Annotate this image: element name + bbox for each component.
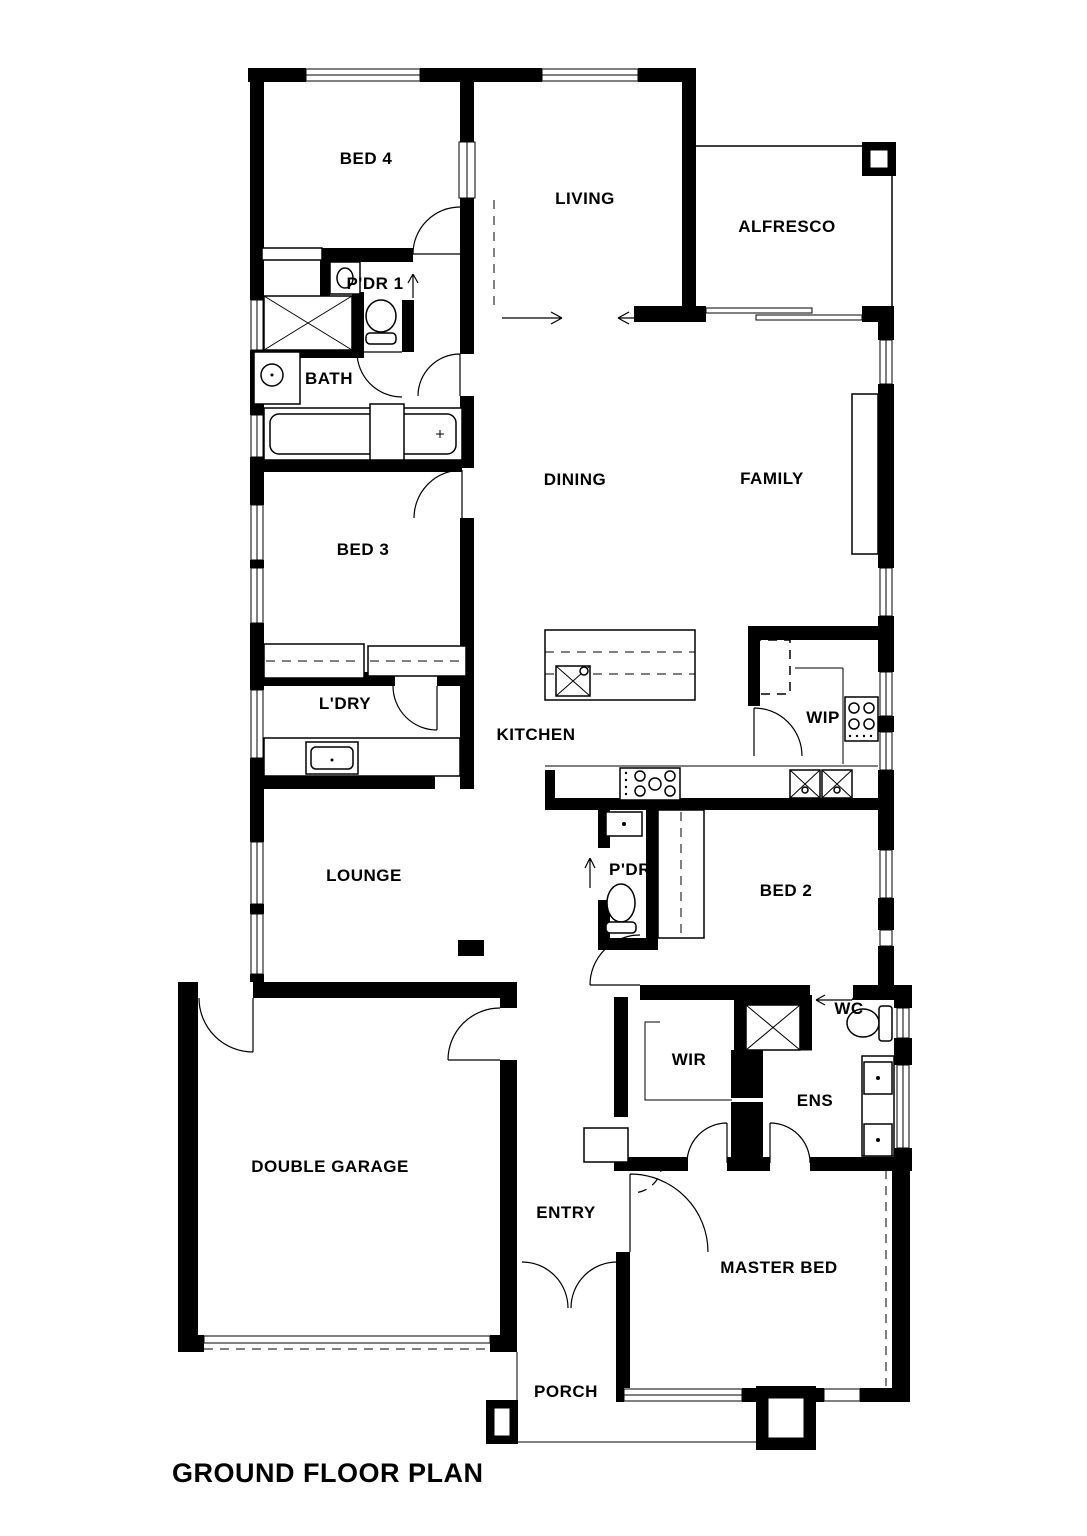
wall [878, 716, 894, 732]
door-swing-icon [199, 998, 253, 1052]
room-label-family: FAMILY [740, 469, 804, 488]
room-label-wc: WC [834, 999, 863, 1018]
door-swing-icon [414, 470, 462, 518]
pillar-core [768, 1398, 804, 1438]
wall [614, 997, 628, 1117]
knob [856, 735, 858, 737]
wall [638, 68, 682, 82]
wall [727, 1157, 770, 1171]
room-label-bed3: BED 3 [337, 540, 390, 559]
wall [352, 292, 364, 352]
room-label-bed4: BED 4 [340, 149, 393, 168]
room-label-porch: PORCH [534, 1382, 598, 1401]
knob [625, 786, 627, 788]
door-swing-icon [687, 1123, 727, 1163]
wall [402, 300, 414, 352]
trough-drain [331, 759, 334, 762]
page-title: GROUND FLOOR PLAN [172, 1458, 484, 1488]
wall [862, 306, 894, 322]
room-label-garage: DOUBLE GARAGE [251, 1157, 409, 1176]
toilet-base [366, 333, 396, 344]
basin-drain [876, 1138, 880, 1142]
wall [731, 1050, 763, 1098]
door-swing-icon [448, 1008, 500, 1060]
room-label-ldry: L'DRY [319, 694, 371, 713]
room-label-master: MASTER BED [720, 1258, 837, 1277]
wall [250, 974, 264, 982]
sliding-door-track [756, 315, 862, 320]
room-label-wir: WIR [672, 1050, 707, 1069]
room-label-bed2: BED 2 [760, 881, 813, 900]
knob [849, 735, 851, 737]
sink-tap [580, 667, 588, 675]
wall [458, 940, 484, 956]
wall [634, 306, 706, 322]
room-label-dining: DINING [544, 470, 607, 489]
wall [460, 775, 474, 789]
window-icon [824, 1389, 860, 1401]
wall [816, 1388, 824, 1402]
knob [863, 735, 865, 737]
knob [870, 735, 872, 737]
door-swing-icon [413, 207, 460, 254]
laundry-bench [264, 738, 460, 776]
wall [616, 1252, 630, 1388]
pantry-cooktop-icon [845, 697, 878, 741]
wall [748, 626, 878, 640]
wall [460, 254, 474, 354]
linen-cupboard [370, 404, 404, 460]
pillar-core [870, 150, 888, 168]
wall [682, 68, 696, 312]
bathtub-inner [270, 414, 456, 454]
garage-door-icon [204, 1336, 490, 1343]
wall [810, 1157, 912, 1171]
room-label-pdr1: P'DR 1 [346, 274, 403, 293]
trough-bowl [311, 747, 353, 769]
wall [460, 686, 474, 775]
pdr1-direction-arrow [408, 274, 418, 298]
wall [250, 904, 264, 914]
knob [625, 772, 627, 774]
pillar-core [494, 1408, 510, 1436]
door-swing-icon [357, 352, 402, 397]
basin-drain [271, 374, 274, 377]
room-label-lounge: LOUNGE [326, 866, 402, 885]
room-label-ens: ENS [797, 1091, 833, 1110]
room-label-living: LIVING [555, 189, 615, 208]
wall [322, 248, 413, 262]
wall [894, 1038, 912, 1065]
wall [250, 460, 462, 472]
wall [878, 384, 894, 568]
wall [460, 518, 474, 640]
door-swing-icon [630, 1174, 708, 1252]
room-label-wip: WIP [806, 708, 840, 727]
garage-door [204, 1336, 490, 1349]
toilet-base [606, 922, 636, 933]
wall [616, 1388, 624, 1402]
wall [878, 616, 894, 672]
room-label-alfresco: ALFRESCO [738, 217, 836, 236]
wall [250, 758, 264, 842]
toilet-base [879, 1006, 892, 1041]
pdr-direction-arrow [585, 858, 595, 888]
wall [892, 1162, 910, 1402]
wall [460, 198, 474, 254]
door-swing-icon [770, 1123, 810, 1163]
knob [625, 779, 627, 781]
room-label-entry: ENTRY [536, 1203, 596, 1222]
door-swing-icon [418, 354, 460, 396]
wall [734, 995, 812, 1005]
toilet-icon [607, 884, 635, 922]
wardrobe-icon [262, 248, 322, 260]
room-label-pdr: P'DR [609, 860, 651, 879]
wall [460, 82, 474, 142]
toilet-icon [366, 300, 396, 332]
door-swing-icon [754, 708, 802, 756]
wall [250, 775, 435, 789]
wall [545, 798, 878, 810]
wall [178, 1335, 204, 1352]
wall [878, 898, 894, 930]
wall [250, 560, 264, 568]
wall [878, 770, 894, 850]
wall [731, 1102, 763, 1162]
wall [742, 1388, 758, 1402]
basin-drain [622, 822, 626, 826]
basin-drain [876, 1076, 880, 1080]
wall [178, 982, 198, 1352]
wall [490, 1335, 517, 1352]
wall [860, 1388, 910, 1402]
room-label-bath: BATH [305, 369, 353, 388]
double-entry-door [522, 1262, 617, 1308]
sink-drain [802, 787, 808, 793]
wall [500, 982, 517, 1008]
room-label-kitchen: KITCHEN [496, 725, 575, 744]
wall [500, 1060, 517, 1352]
sink-drain [834, 787, 840, 793]
family-niche [852, 394, 878, 554]
wall [853, 985, 912, 1000]
sliding-door-track [706, 308, 812, 313]
knob [625, 793, 627, 795]
wall [878, 322, 894, 340]
door-swing-icon [393, 686, 437, 730]
floor-plan-page: BED 4 LIVING ALFRESCO P'DR 1 BATH DINING… [0, 0, 1087, 1536]
wall [250, 68, 264, 300]
wall [253, 982, 500, 998]
wall [420, 68, 542, 82]
window-icon [880, 930, 892, 946]
entry-cupboard [584, 1128, 628, 1162]
sliding-door-arrow-icon [502, 312, 562, 324]
floor-plan-drawing: BED 4 LIVING ALFRESCO P'DR 1 BATH DINING… [0, 0, 1087, 1536]
